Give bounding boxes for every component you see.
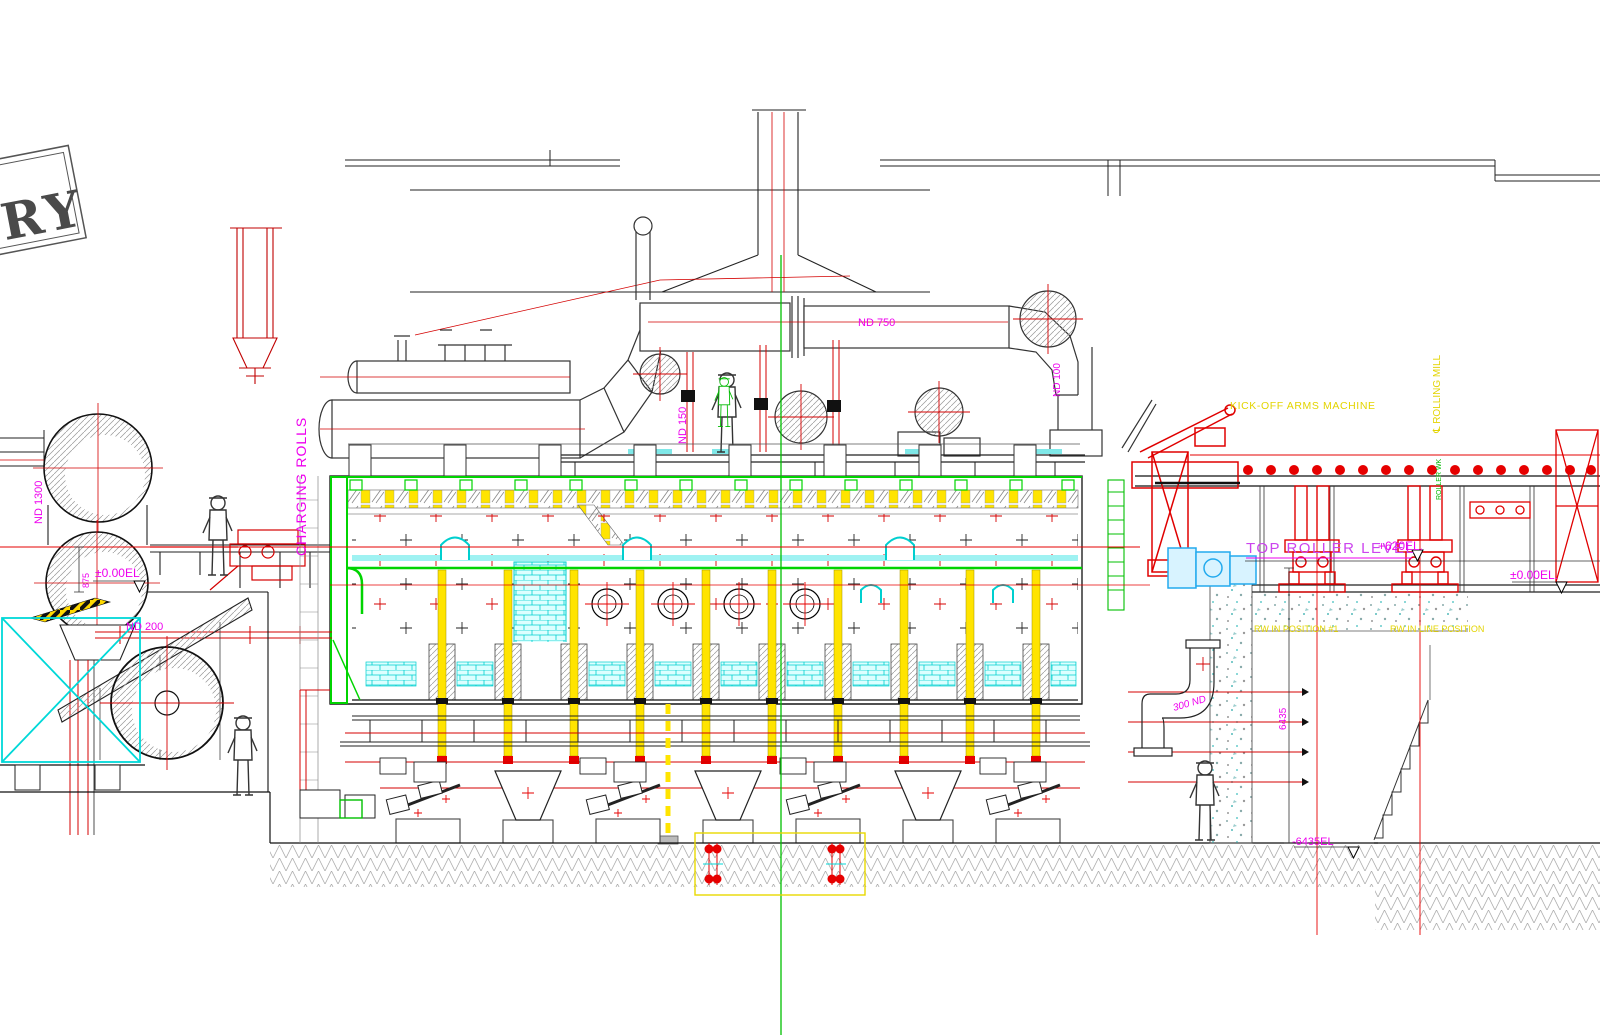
duct-system bbox=[319, 217, 1102, 458]
approval-stamp: RY bbox=[0, 145, 90, 303]
cad-drawing-canvas: RY bbox=[0, 0, 1600, 1035]
label-el-620: +620EL. bbox=[1378, 539, 1423, 553]
stack bbox=[410, 110, 930, 335]
label-nd100: ND 100 bbox=[1052, 363, 1063, 397]
stamp-text: RY bbox=[0, 178, 90, 252]
label-nd150: ND 150 bbox=[677, 407, 689, 444]
label-nd1300: ND 1300 bbox=[33, 481, 45, 524]
label-el-minus-6435: -6435EL bbox=[1292, 836, 1334, 848]
label-el-zero-right: ±0.00EL. bbox=[1510, 568, 1558, 582]
building-roof-lines bbox=[345, 150, 1600, 196]
label-rw-position-1: RW IN POSITION #1 bbox=[1254, 624, 1338, 634]
label-kick-off-arms: KICK-OFF ARMS MACHINE bbox=[1230, 400, 1376, 412]
label-nd750: ND 750 bbox=[858, 317, 895, 329]
left-side bbox=[0, 403, 375, 843]
label-rolling-mill-centerline: ℄ ROLLING MILL bbox=[1432, 354, 1443, 434]
label-nd300: 300 ND bbox=[1172, 694, 1208, 714]
label-el-zero-left: ±0.00EL bbox=[95, 566, 140, 580]
label-rw-line-position: RW IN LINE POSITION bbox=[1390, 624, 1484, 634]
roof-insulation-band bbox=[348, 490, 1078, 508]
drive-unit bbox=[1168, 548, 1256, 588]
table-rollers bbox=[1243, 465, 1596, 475]
label-roller-wk: ROLLER WK bbox=[1436, 458, 1443, 500]
label-dim-6435: 6435 bbox=[1278, 707, 1289, 730]
access-ladder bbox=[1108, 480, 1124, 610]
nd300-pipe bbox=[1134, 640, 1220, 756]
label-nd200: ND 200 bbox=[126, 621, 163, 633]
label-charging-rolls: CHARGING ROLLS bbox=[293, 417, 309, 556]
crane-pendant bbox=[230, 228, 282, 384]
basement bbox=[270, 704, 1600, 930]
label-dim-875: 875 bbox=[81, 573, 91, 588]
